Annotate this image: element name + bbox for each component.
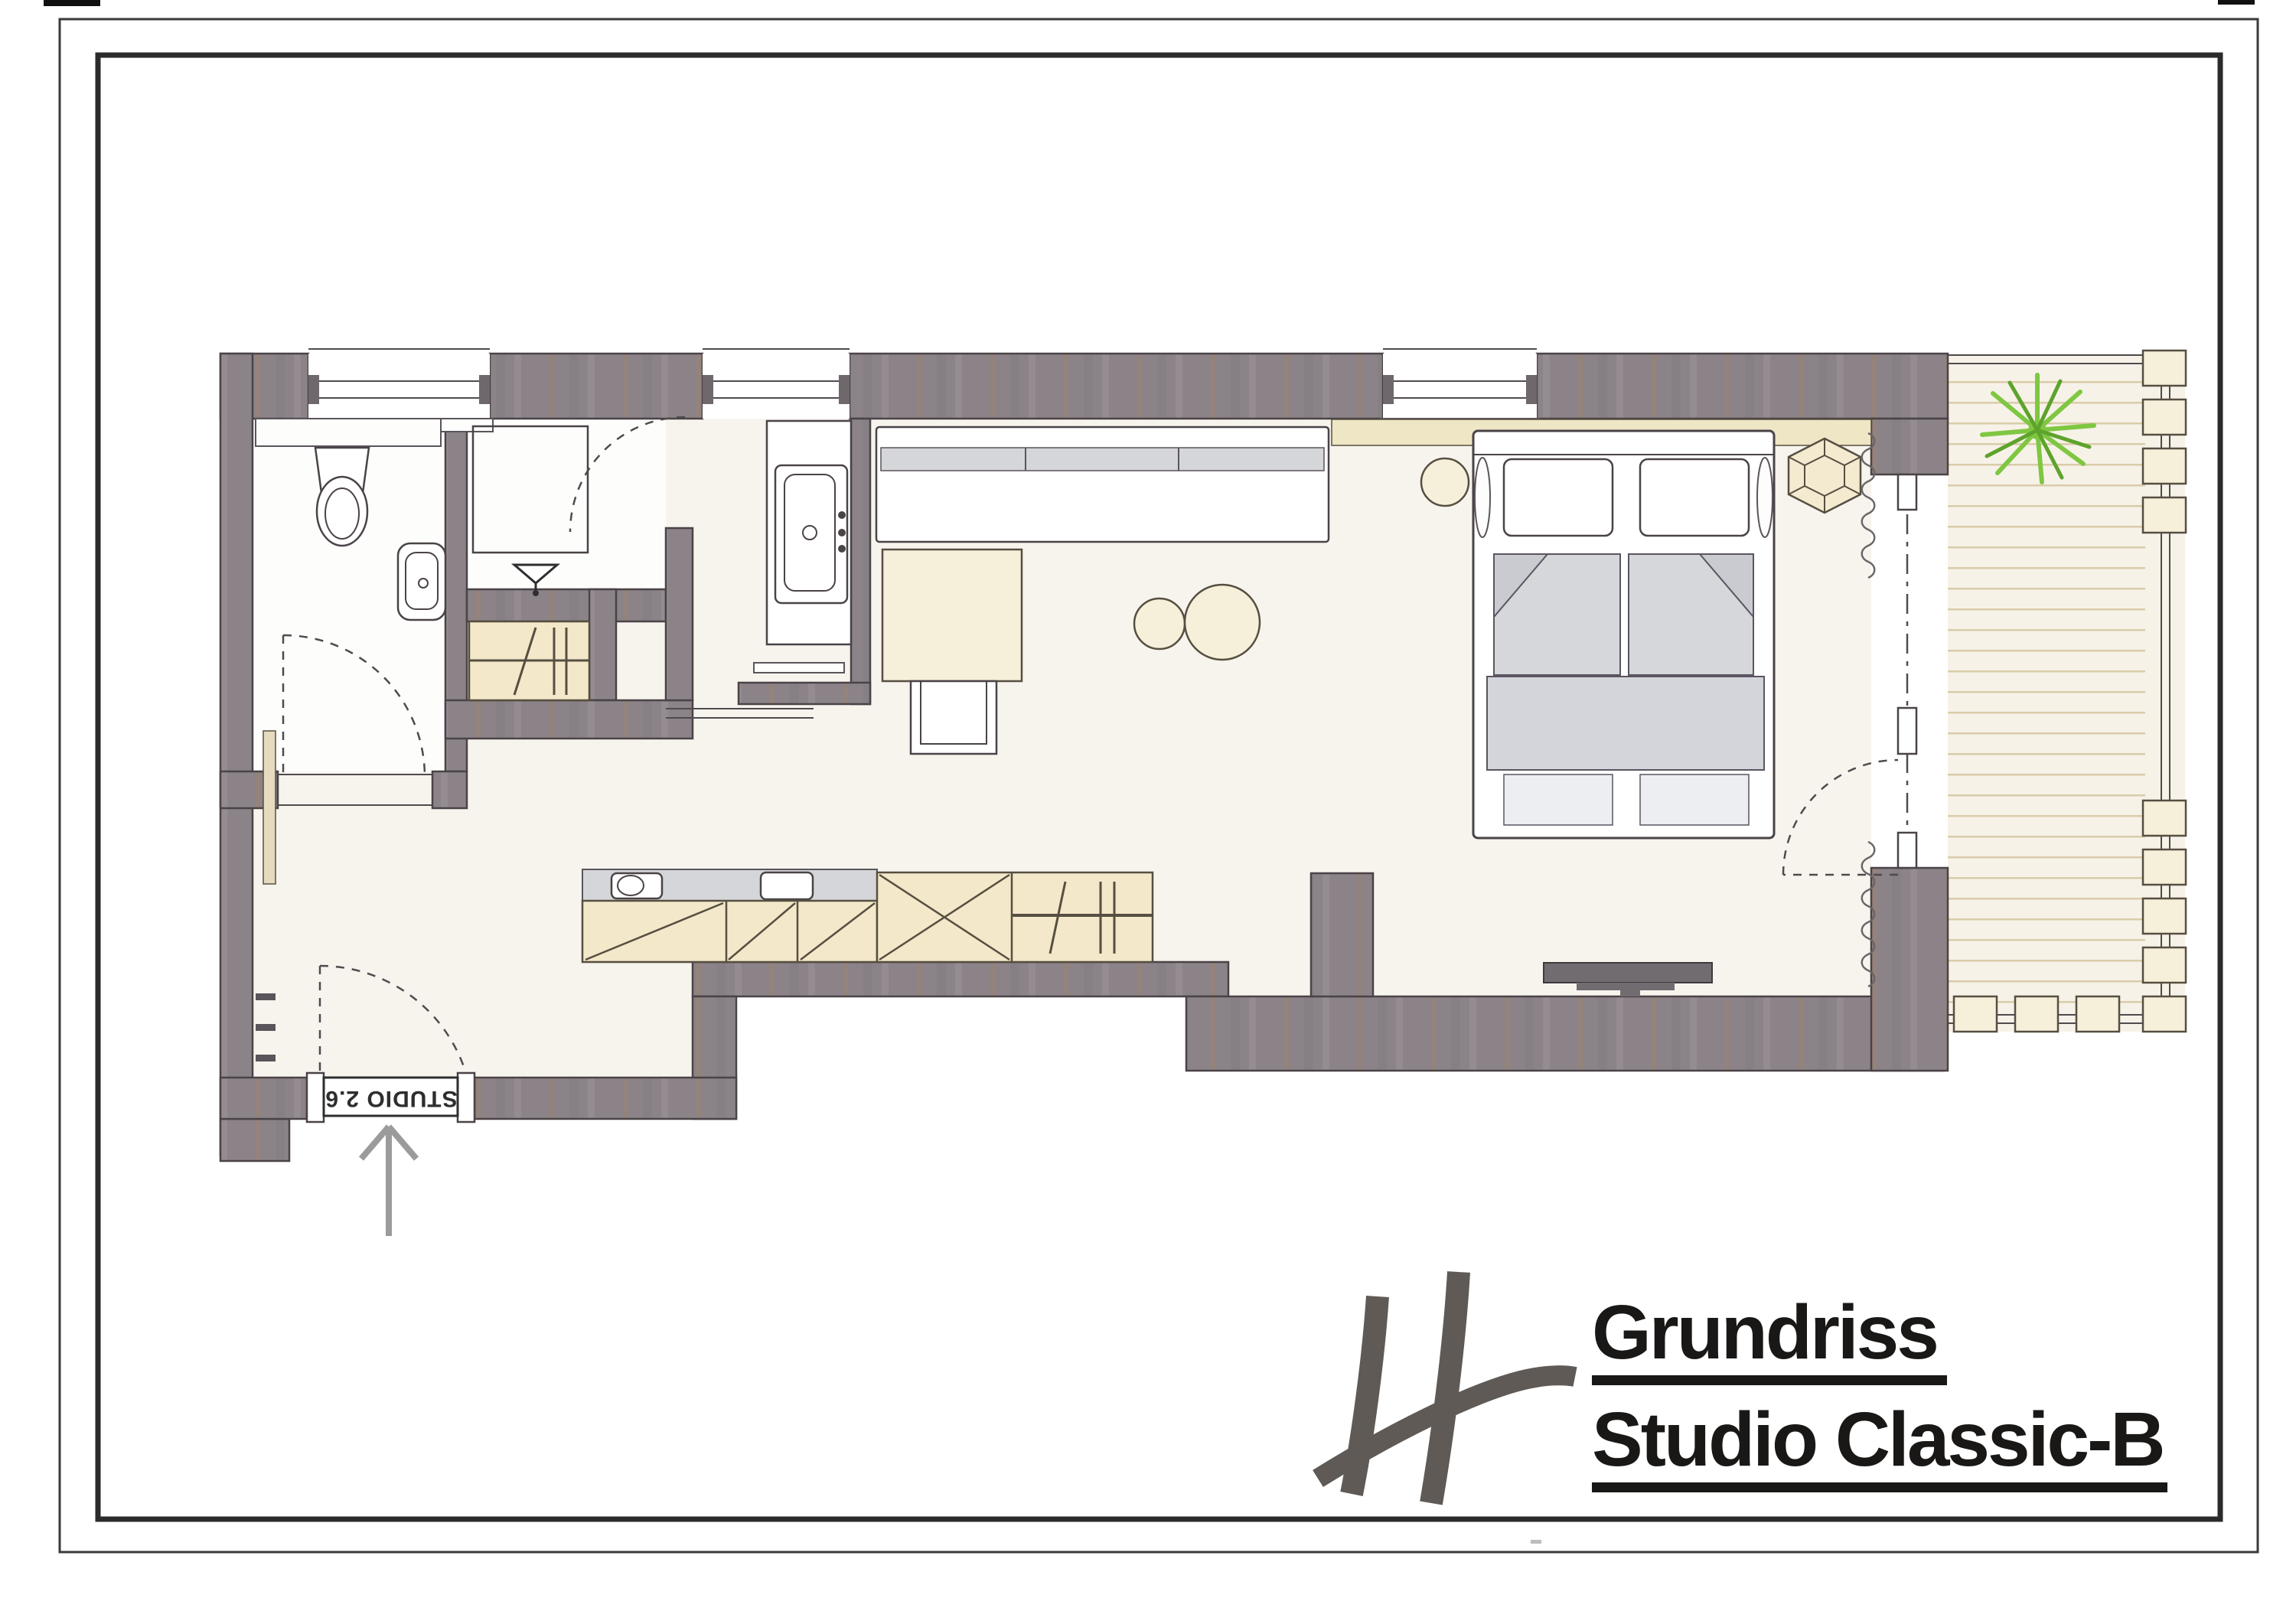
title-underline-1	[1592, 1375, 1947, 1385]
kitchen-sink-icon	[612, 873, 662, 898]
entry-door-post-right	[458, 1073, 475, 1122]
scan-mark-right	[2218, 0, 2255, 5]
window-2	[703, 349, 850, 419]
coat-hook	[256, 1024, 276, 1031]
entry-arrow-icon	[361, 1127, 416, 1236]
foot-cushion	[1640, 774, 1749, 825]
planter-post	[2076, 996, 2119, 1032]
planter-post	[2143, 947, 2186, 983]
door-frame-top	[1898, 474, 1916, 510]
wall-top-3	[850, 354, 1383, 419]
scan-mark-left	[44, 0, 100, 6]
door-frame-bottom	[1898, 833, 1916, 868]
wall-entry-left	[220, 1078, 307, 1119]
bed-runner	[1487, 677, 1764, 770]
base-cabinets	[582, 901, 877, 962]
tub-faucet-dot	[838, 545, 846, 553]
cooktop-icon	[761, 872, 813, 899]
planter-post	[2143, 448, 2186, 484]
round-nightstand	[1421, 458, 1469, 506]
wall-balcony-lower	[1871, 868, 1948, 1071]
console-sideboard	[876, 427, 1329, 542]
toilet-icon	[315, 448, 369, 546]
desk-chair	[911, 681, 996, 754]
planter-post	[2143, 497, 2186, 533]
wall-top-2	[490, 354, 703, 419]
wall-pillar	[1311, 873, 1373, 996]
wall-entry-right	[475, 1078, 736, 1119]
window-opening	[308, 354, 490, 419]
title-underline-2	[1592, 1482, 2167, 1492]
wall-closet-right	[589, 589, 616, 700]
planter-post	[2143, 801, 2186, 836]
branding: Grundriss Studio Classic-B	[1318, 1272, 2167, 1503]
bed-bolster	[1757, 458, 1773, 537]
wall-kitchen-bottom	[693, 962, 1228, 996]
coat-hook	[256, 993, 276, 1000]
wall-shower-bottom	[445, 700, 693, 739]
planter-post	[2143, 850, 2186, 885]
duvet-right	[1629, 554, 1753, 675]
wall-tub-niche-right	[851, 419, 870, 704]
balcony	[1948, 351, 2186, 1032]
page-title-line2: Studio Classic-B	[1592, 1397, 2164, 1482]
floor-plan-page: STUDIO 2.6	[0, 0, 2296, 1624]
window-3	[1380, 349, 1540, 430]
wall-tub-niche-bottom	[739, 683, 870, 704]
door-handle	[1898, 708, 1916, 754]
kitchenette	[582, 869, 1153, 962]
washbasin-icon	[398, 543, 445, 620]
planter-post	[2143, 399, 2186, 435]
pillow	[1504, 459, 1613, 536]
scan-dash-bottom	[1531, 1540, 1541, 1544]
duvet-left	[1494, 554, 1620, 675]
wall-bedroom-bottom	[1186, 996, 1944, 1071]
tub-faucet-dot	[838, 529, 846, 536]
planter-post	[1954, 996, 1997, 1032]
pillow	[1640, 459, 1749, 536]
shower-floor	[467, 419, 666, 589]
coat-hook	[256, 1055, 276, 1061]
floor-plan-drawing: STUDIO 2.6	[0, 0, 2296, 1624]
wall-panel	[263, 731, 276, 884]
bed-bolster	[1475, 458, 1490, 537]
double-bed	[1473, 431, 1774, 838]
planter-post	[2143, 898, 2186, 934]
planter-post	[2143, 351, 2186, 386]
tub-faucet-dot	[838, 511, 846, 519]
wall-shower-mid	[467, 589, 666, 621]
window-opening	[703, 354, 850, 419]
desk	[882, 549, 1022, 681]
wall-balcony-upper	[1871, 419, 1948, 474]
round-stool-small	[1134, 598, 1185, 649]
wall-bathroom-bottom-right	[432, 771, 467, 808]
round-stool-large	[1185, 585, 1260, 660]
window-opening	[1383, 354, 1537, 419]
wall-left	[220, 354, 253, 1156]
foot-cushion	[1504, 774, 1613, 825]
wall-top-4	[1537, 354, 1948, 419]
closet-icon	[469, 621, 589, 700]
wardrobe	[877, 872, 1153, 962]
wall-shower-right	[666, 528, 693, 700]
planter-post	[2015, 996, 2058, 1032]
brand-logo	[1318, 1272, 1575, 1503]
bathroom-shelf	[256, 419, 441, 446]
bathtub-icon	[775, 465, 847, 603]
logo-stroke-right	[1431, 1272, 1459, 1503]
wall-left-foot	[220, 1119, 289, 1161]
entry-door-post-left	[307, 1073, 324, 1122]
page-title-line1: Grundriss	[1592, 1290, 1937, 1375]
entry-room-label: STUDIO 2.6	[325, 1086, 457, 1111]
tub-step-ledge	[754, 663, 844, 673]
planter-post	[2143, 996, 2186, 1032]
deck-planks	[1948, 366, 2145, 1013]
